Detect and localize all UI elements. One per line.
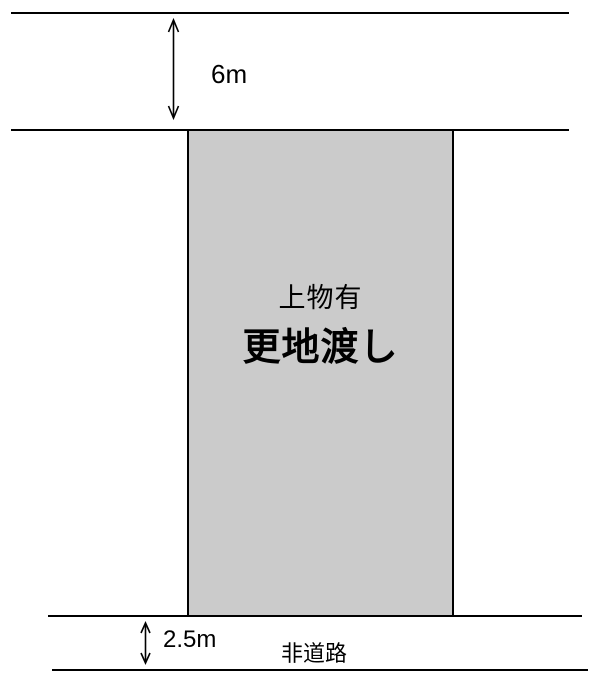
- strip-width-label: 2.5m: [163, 626, 216, 654]
- land-plot-rect: 上物有 更地渡し: [187, 129, 454, 617]
- road-upper-boundary-line: [11, 12, 569, 14]
- plot-condition-label: 上物有: [189, 284, 452, 314]
- strip-upper-boundary-line: [48, 615, 582, 617]
- dimension-arrow-6m-icon: [165, 17, 182, 121]
- dimension-arrow-2-5m-icon: [137, 620, 154, 666]
- plot-delivery-label: 更地渡し: [189, 328, 452, 370]
- non-road-label: 非道路: [281, 636, 347, 668]
- land-plot-diagram: 6m 上物有 更地渡し 2.5m 非道路: [0, 0, 600, 684]
- strip-lower-boundary-line: [52, 669, 588, 671]
- road-width-label: 6m: [211, 59, 247, 90]
